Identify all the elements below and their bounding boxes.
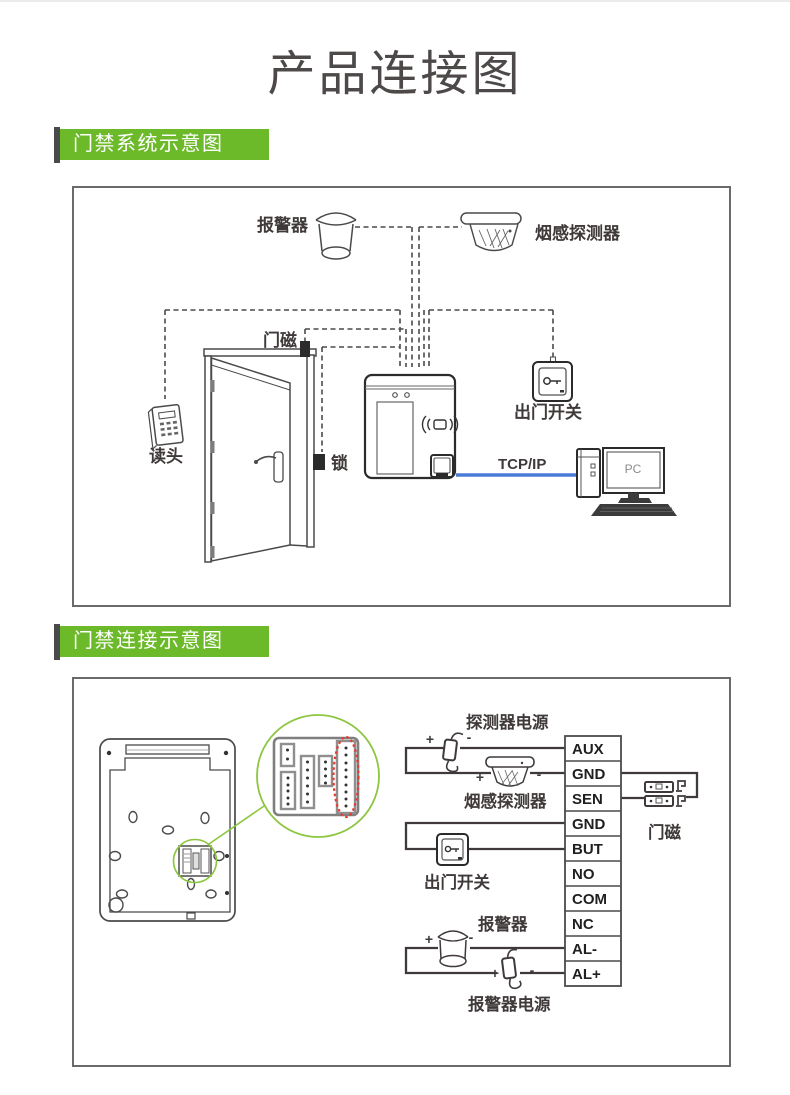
- callout-board: [274, 737, 359, 817]
- smoke-detector-label: 烟感探测器: [464, 791, 547, 811]
- door-magnet-block: [300, 341, 310, 357]
- alarm-label: 报警器: [478, 914, 528, 934]
- device-back-panel: [100, 739, 235, 921]
- minus-sign: -: [537, 766, 542, 782]
- door-magnet-icon: [645, 781, 685, 806]
- plus-sign: +: [491, 965, 499, 981]
- lock-block: [313, 454, 325, 470]
- plus-sign: +: [426, 731, 434, 747]
- system-diagram: 报警器 烟感探测器 门磁 读头 锁 出门开关 TCP/IP PC: [74, 188, 729, 605]
- keyboard-icon: [591, 504, 677, 516]
- top-rule: [0, 0, 790, 2]
- alarm-siren-icon-small: [438, 931, 468, 967]
- system-diagram-panel: 报警器 烟感探测器 门磁 读头 锁 出门开关 TCP/IP PC: [72, 186, 731, 607]
- access-terminal-device: [365, 375, 458, 478]
- page: 产品连接图 门禁系统示意图: [0, 0, 790, 1095]
- minus-sign: -: [530, 962, 535, 978]
- terminal-label: BUT: [572, 841, 603, 858]
- terminal-label: NC: [572, 916, 594, 933]
- exit-switch-label: 出门开关: [514, 402, 582, 422]
- connection-diagram-panel: AUX GND SEN GND BUT NO COM NC AL- AL+ + …: [72, 677, 731, 1067]
- page-title: 产品连接图: [0, 34, 790, 104]
- smoke-detector-icon-small: [486, 757, 534, 787]
- exit-switch-label: 出门开关: [424, 872, 491, 892]
- terminal-label: COM: [572, 891, 607, 908]
- alarm-power-adapter-icon: [501, 949, 522, 989]
- alarm-siren-icon: [316, 213, 356, 259]
- smoke-detector-icon: [461, 213, 521, 251]
- door-magnet-label: 门磁: [263, 330, 297, 350]
- card-reader-icon: [148, 404, 184, 448]
- plus-sign: +: [425, 931, 433, 947]
- terminal-label: AUX: [572, 741, 604, 758]
- terminal-label: AL+: [572, 966, 601, 983]
- minus-sign: -: [469, 929, 474, 945]
- terminal-label: SEN: [572, 791, 603, 808]
- alarm-power-label: 报警器电源: [468, 994, 551, 1014]
- lock-label: 锁: [331, 453, 348, 473]
- exit-switch-icon: [533, 357, 572, 401]
- terminal-label: AL-: [572, 941, 597, 958]
- terminal-strip: AUX GND SEN GND BUT NO COM NC AL- AL+: [565, 736, 621, 986]
- badge-label: 门禁系统示意图: [60, 129, 269, 160]
- plus-sign: +: [476, 769, 484, 785]
- terminal-label: GND: [572, 766, 606, 783]
- door-graphic: [204, 349, 316, 562]
- terminal-label: NO: [572, 866, 595, 883]
- reader-label: 读头: [149, 446, 183, 466]
- badge-label: 门禁连接示意图: [60, 626, 269, 657]
- detector-power-adapter-icon: [441, 732, 463, 773]
- panel-connector-block: [179, 846, 211, 876]
- exit-switch-icon-small: [437, 834, 468, 865]
- alarm-label: 报警器: [257, 215, 309, 235]
- smoke-detector-label: 烟感探测器: [535, 223, 621, 243]
- connection-diagram: AUX GND SEN GND BUT NO COM NC AL- AL+ + …: [74, 679, 729, 1065]
- pc-label: PC: [625, 462, 642, 476]
- terminal-label: GND: [572, 816, 606, 833]
- door-magnet-label: 门磁: [648, 822, 682, 842]
- detector-power-label: 探测器电源: [466, 712, 549, 732]
- pc-icon: [577, 448, 677, 516]
- tcpip-label: TCP/IP: [498, 456, 546, 473]
